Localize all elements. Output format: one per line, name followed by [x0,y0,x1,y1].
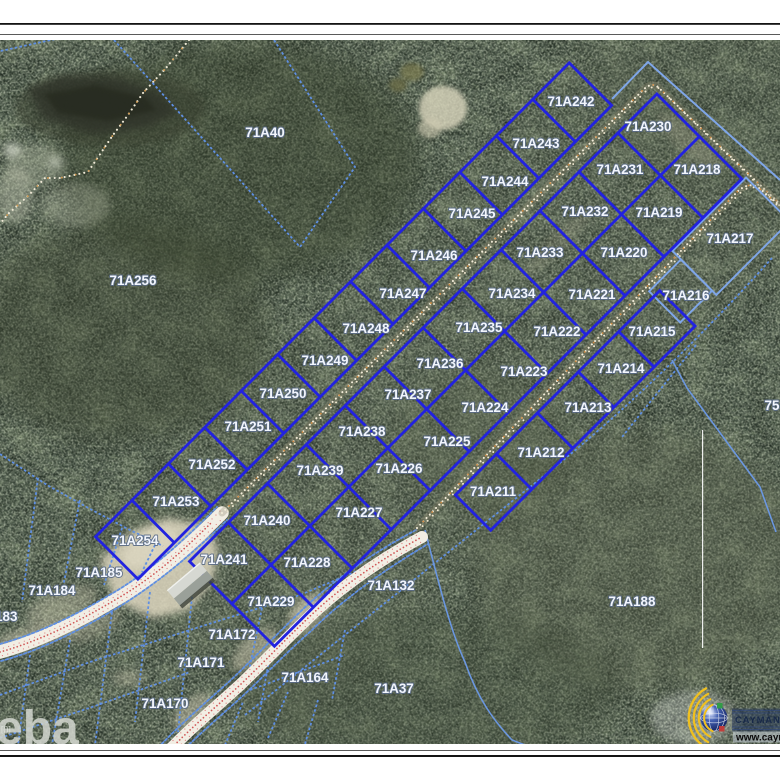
svg-text:71A241: 71A241 [201,552,248,567]
svg-text:71A249: 71A249 [302,353,349,368]
svg-text:71A244: 71A244 [482,174,529,189]
svg-text:71A221: 71A221 [569,287,616,302]
svg-text:71A237: 71A237 [385,387,432,402]
svg-text:71A250: 71A250 [260,386,307,401]
svg-text:71A40: 71A40 [245,125,284,140]
svg-text:71A213: 71A213 [565,400,612,415]
svg-text:71A236: 71A236 [417,356,464,371]
svg-text:71A216: 71A216 [663,288,710,303]
svg-text:CAYMAN AI: CAYMAN AI [735,715,780,726]
svg-text:71A188: 71A188 [609,594,656,609]
svg-text:71A238: 71A238 [339,424,386,439]
svg-text:71A256: 71A256 [110,273,157,288]
svg-text:71A253: 71A253 [153,494,200,509]
svg-text:71A242: 71A242 [548,94,595,109]
svg-text:71A230: 71A230 [625,119,672,134]
svg-text:71A222: 71A222 [534,324,581,339]
svg-text:71A212: 71A212 [518,445,565,460]
svg-text:71A223: 71A223 [501,364,548,379]
svg-text:71A243: 71A243 [513,136,560,151]
svg-text:71A228: 71A228 [284,555,331,570]
svg-text:71A217: 71A217 [707,231,754,246]
svg-text:71A246: 71A246 [411,248,458,263]
svg-text:71A252: 71A252 [189,457,236,472]
svg-text:71A251: 71A251 [225,419,272,434]
svg-text:71A245: 71A245 [449,206,496,221]
svg-text:71A239: 71A239 [297,463,344,478]
svg-text:[()]: [()] [1,725,11,734]
svg-text:71A235: 71A235 [456,320,503,335]
svg-text:75: 75 [765,398,780,413]
svg-text:71A183: 71A183 [0,609,17,624]
svg-text:71A170: 71A170 [142,696,189,711]
svg-text:71A218: 71A218 [674,162,721,177]
svg-text:71A215: 71A215 [629,324,676,339]
svg-text:71A132: 71A132 [368,578,415,593]
svg-text:71A211: 71A211 [470,484,517,499]
svg-text:71A231: 71A231 [597,162,644,177]
svg-text:71A224: 71A224 [462,400,509,415]
svg-text:www.caym: www.caym [735,733,780,744]
svg-text:71A37: 71A37 [374,681,413,696]
svg-text:71A214: 71A214 [598,361,645,376]
svg-text:71A233: 71A233 [517,245,564,260]
svg-text:71A229: 71A229 [248,594,295,609]
svg-text:71A247: 71A247 [380,286,427,301]
svg-text:71A172: 71A172 [209,627,256,642]
svg-text:71A226: 71A226 [376,461,423,476]
svg-text:71A227: 71A227 [336,505,383,520]
svg-text:71A225: 71A225 [424,434,471,449]
svg-text:71A220: 71A220 [601,245,648,260]
svg-text:71A232: 71A232 [562,204,609,219]
svg-text:71A219: 71A219 [636,205,683,220]
svg-text:71A171: 71A171 [178,655,225,670]
svg-text:71A185: 71A185 [76,565,123,580]
svg-text:71A240: 71A240 [244,513,291,528]
svg-text:71A184: 71A184 [29,583,76,598]
svg-text:71A164: 71A164 [282,670,329,685]
svg-text:71A254: 71A254 [112,533,159,548]
svg-text:71A234: 71A234 [489,286,536,301]
svg-text:71A248: 71A248 [343,321,390,336]
